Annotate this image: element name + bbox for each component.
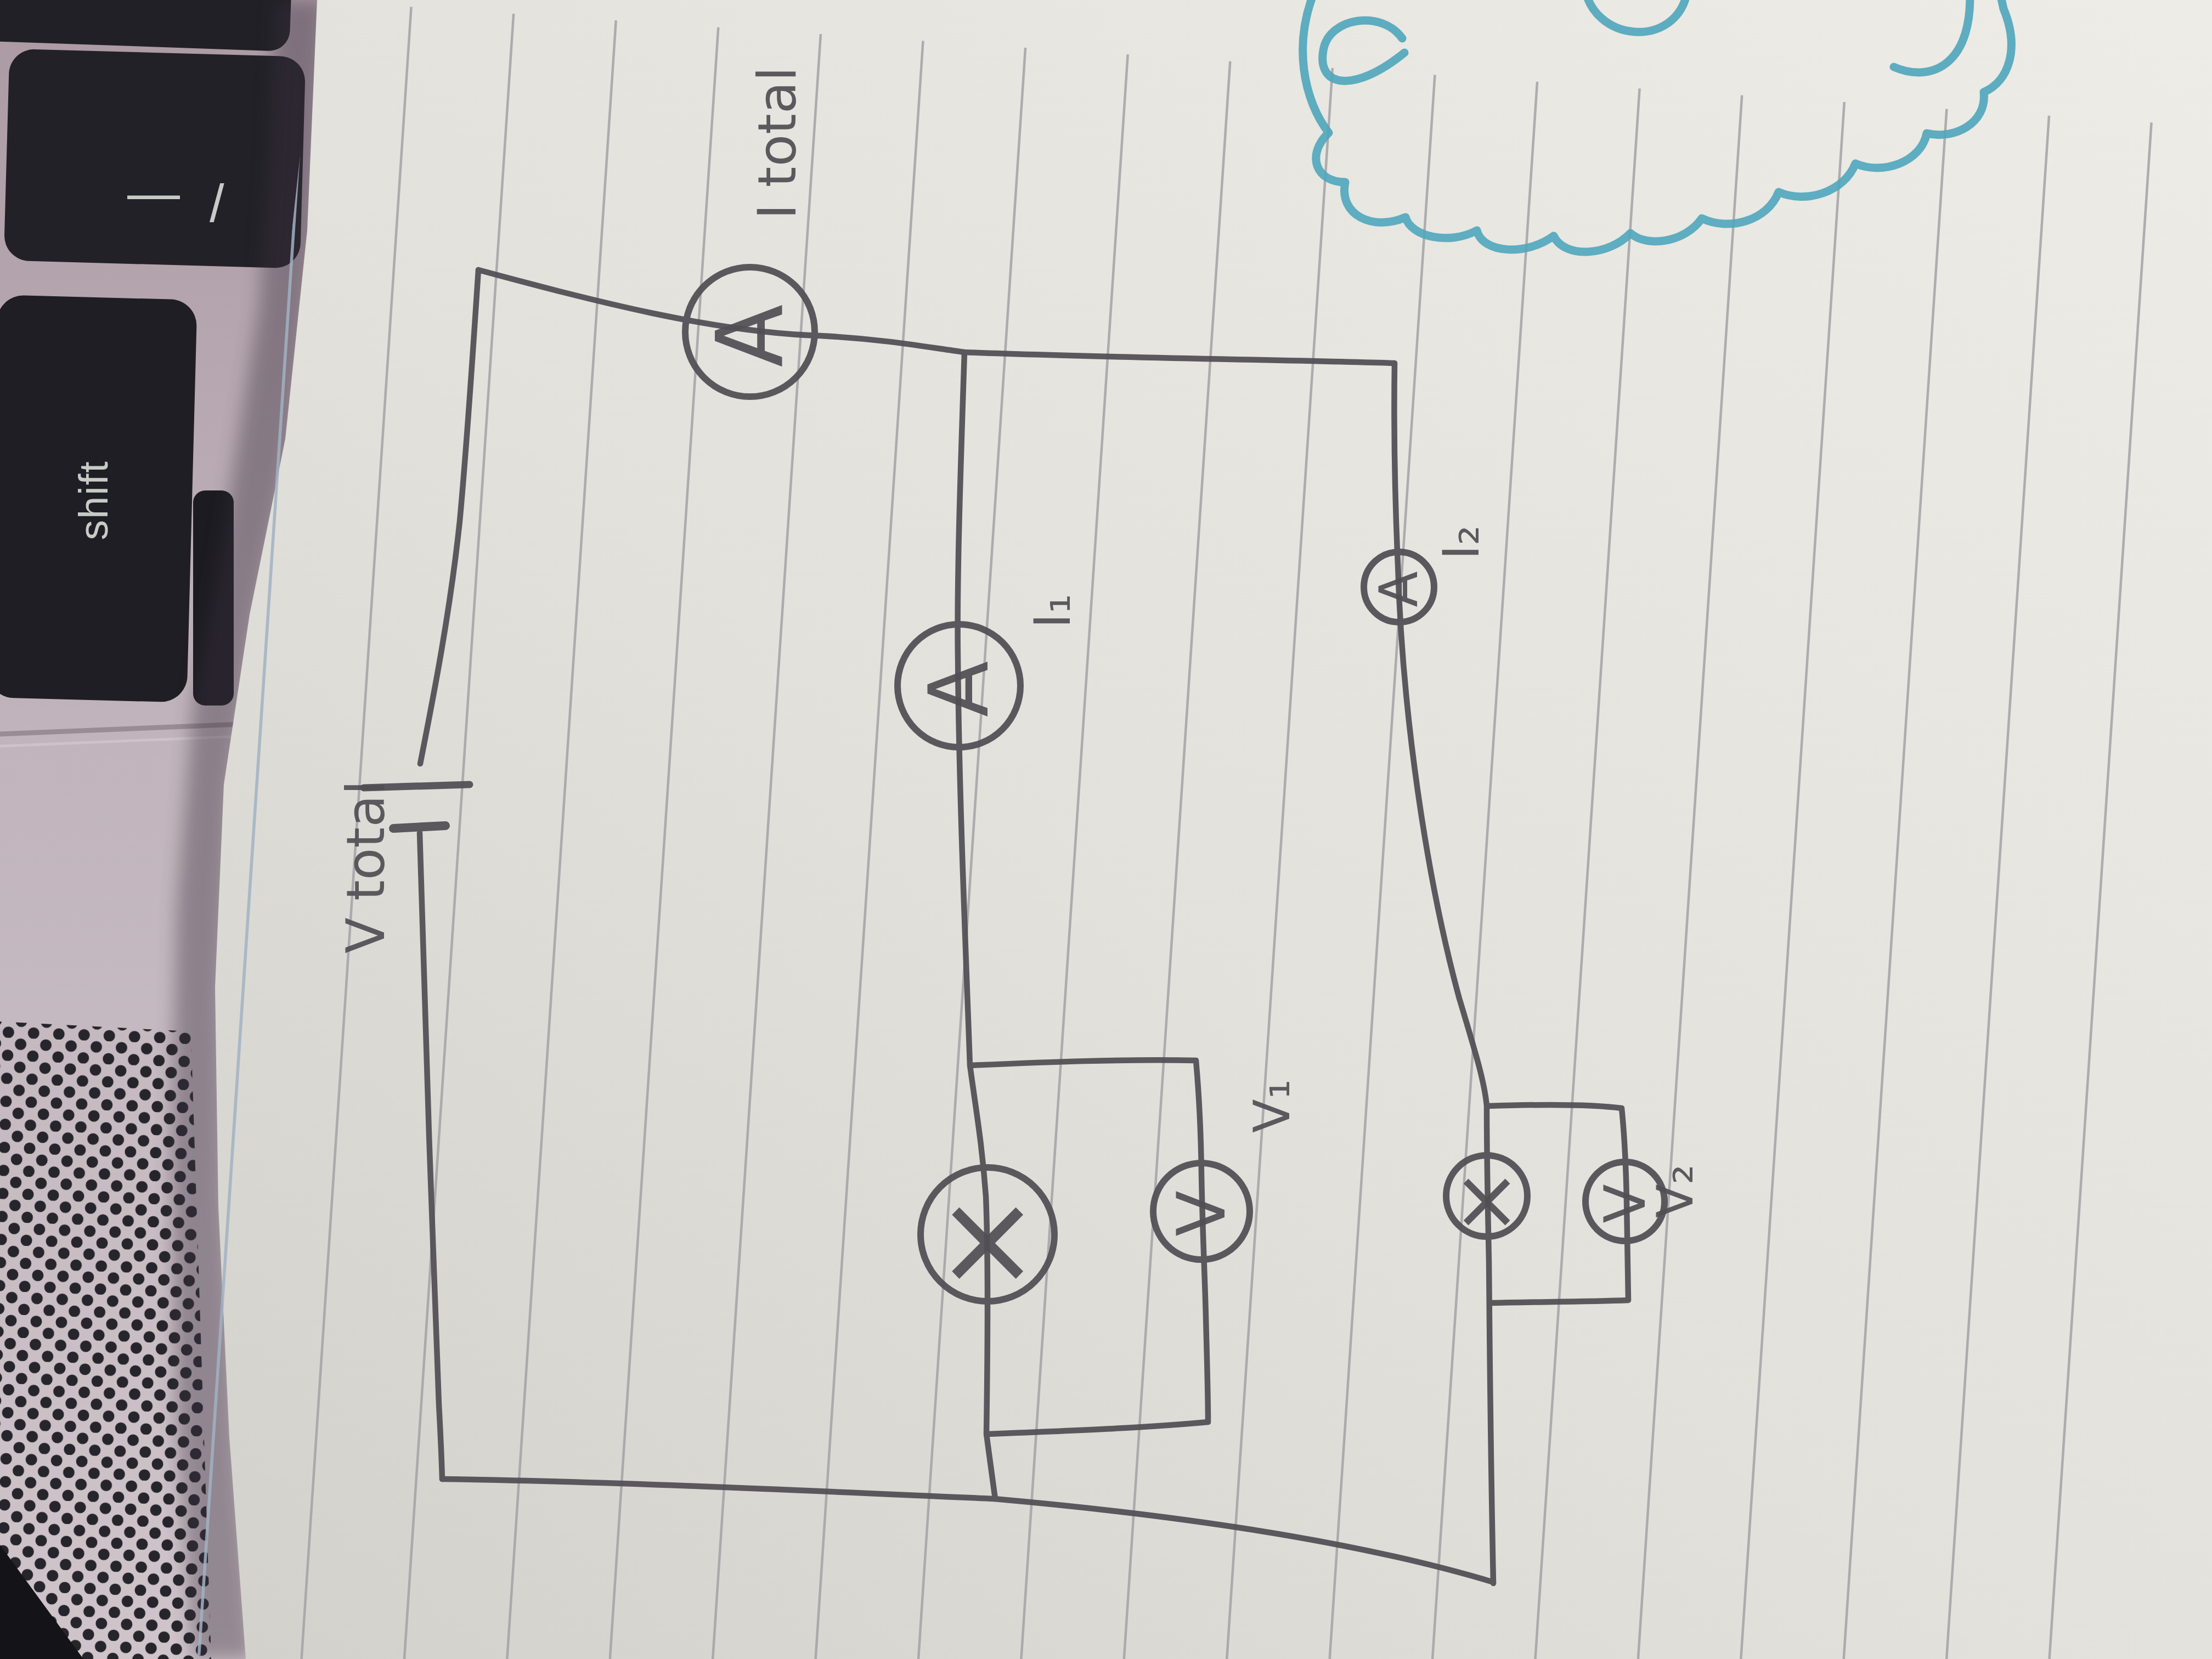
pipe-key-dash-glyph: — [127, 163, 180, 222]
paper-sheet [215, 0, 2212, 1659]
branch1-voltmeter-label: V₁ [1243, 1079, 1301, 1133]
battery-short-plate [393, 826, 445, 828]
branch1-ammeter-label: I₁ [1024, 594, 1081, 628]
branch2-voltmeter-label: V₂ [1646, 1164, 1704, 1218]
main-ammeter-glyph: A [696, 304, 804, 368]
main-ammeter-label: I total [747, 67, 808, 219]
branch1-lamp-glyph: × [935, 1166, 1041, 1312]
photo-of-circuit-notes: — / shift [0, 0, 2212, 1659]
branch2-ammeter-label: I₂ [1432, 525, 1490, 560]
pipe-backslash-key: — / [4, 49, 306, 269]
branch1-ammeter-glyph: A [911, 661, 1007, 718]
battery-label: V total [335, 780, 397, 953]
branch2-ammeter-glyph: A [1368, 571, 1430, 607]
notebook-paper: A A A × × V V V total I total I₁ I₂ V₁ V… [185, 0, 2212, 1659]
shift-key: shift [0, 295, 198, 702]
pipe-key-slash-glyph: / [210, 174, 224, 233]
shift-key-label: shift [71, 460, 116, 540]
branch1-voltmeter-glyph: V [1163, 1190, 1240, 1236]
branch2-lamp-glyph: × [1452, 1152, 1521, 1247]
